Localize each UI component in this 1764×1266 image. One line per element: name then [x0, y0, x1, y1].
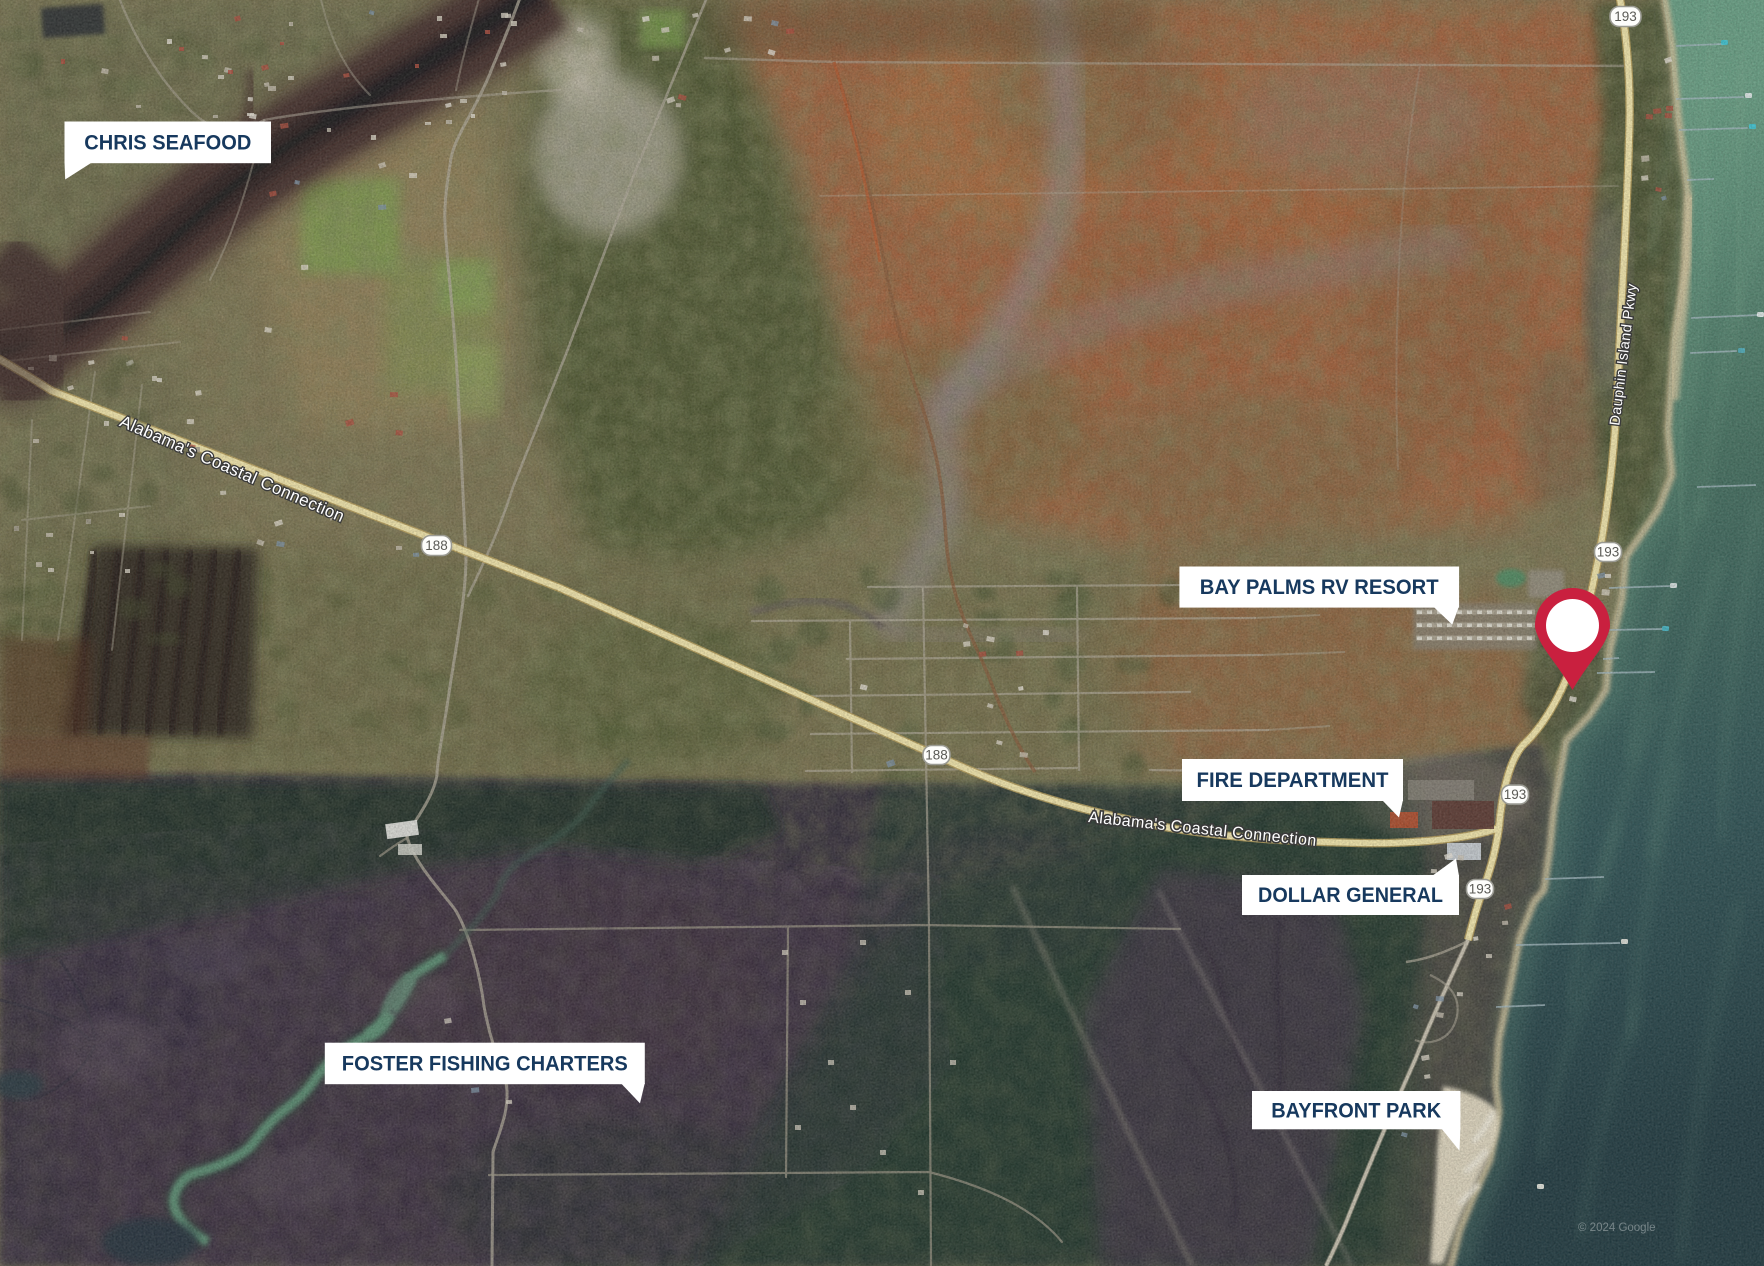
svg-text:FIRE DEPARTMENT: FIRE DEPARTMENT: [1197, 769, 1389, 792]
svg-text:FOSTER FISHING CHARTERS: FOSTER FISHING CHARTERS: [342, 1053, 628, 1076]
svg-text:CHRIS SEAFOOD: CHRIS SEAFOOD: [84, 132, 251, 155]
svg-text:DOLLAR GENERAL: DOLLAR GENERAL: [1258, 884, 1443, 907]
svg-text:193: 193: [1614, 9, 1637, 24]
svg-text:188: 188: [425, 538, 448, 553]
svg-text:BAY PALMS RV RESORT: BAY PALMS RV RESORT: [1200, 576, 1439, 599]
svg-text:193: 193: [1597, 545, 1620, 560]
svg-text:188: 188: [925, 748, 948, 763]
svg-text:193: 193: [1504, 787, 1527, 802]
svg-text:© 2024 Google: © 2024 Google: [1578, 1222, 1656, 1234]
svg-text:BAYFRONT PARK: BAYFRONT PARK: [1271, 1099, 1441, 1122]
svg-text:193: 193: [1469, 882, 1492, 897]
